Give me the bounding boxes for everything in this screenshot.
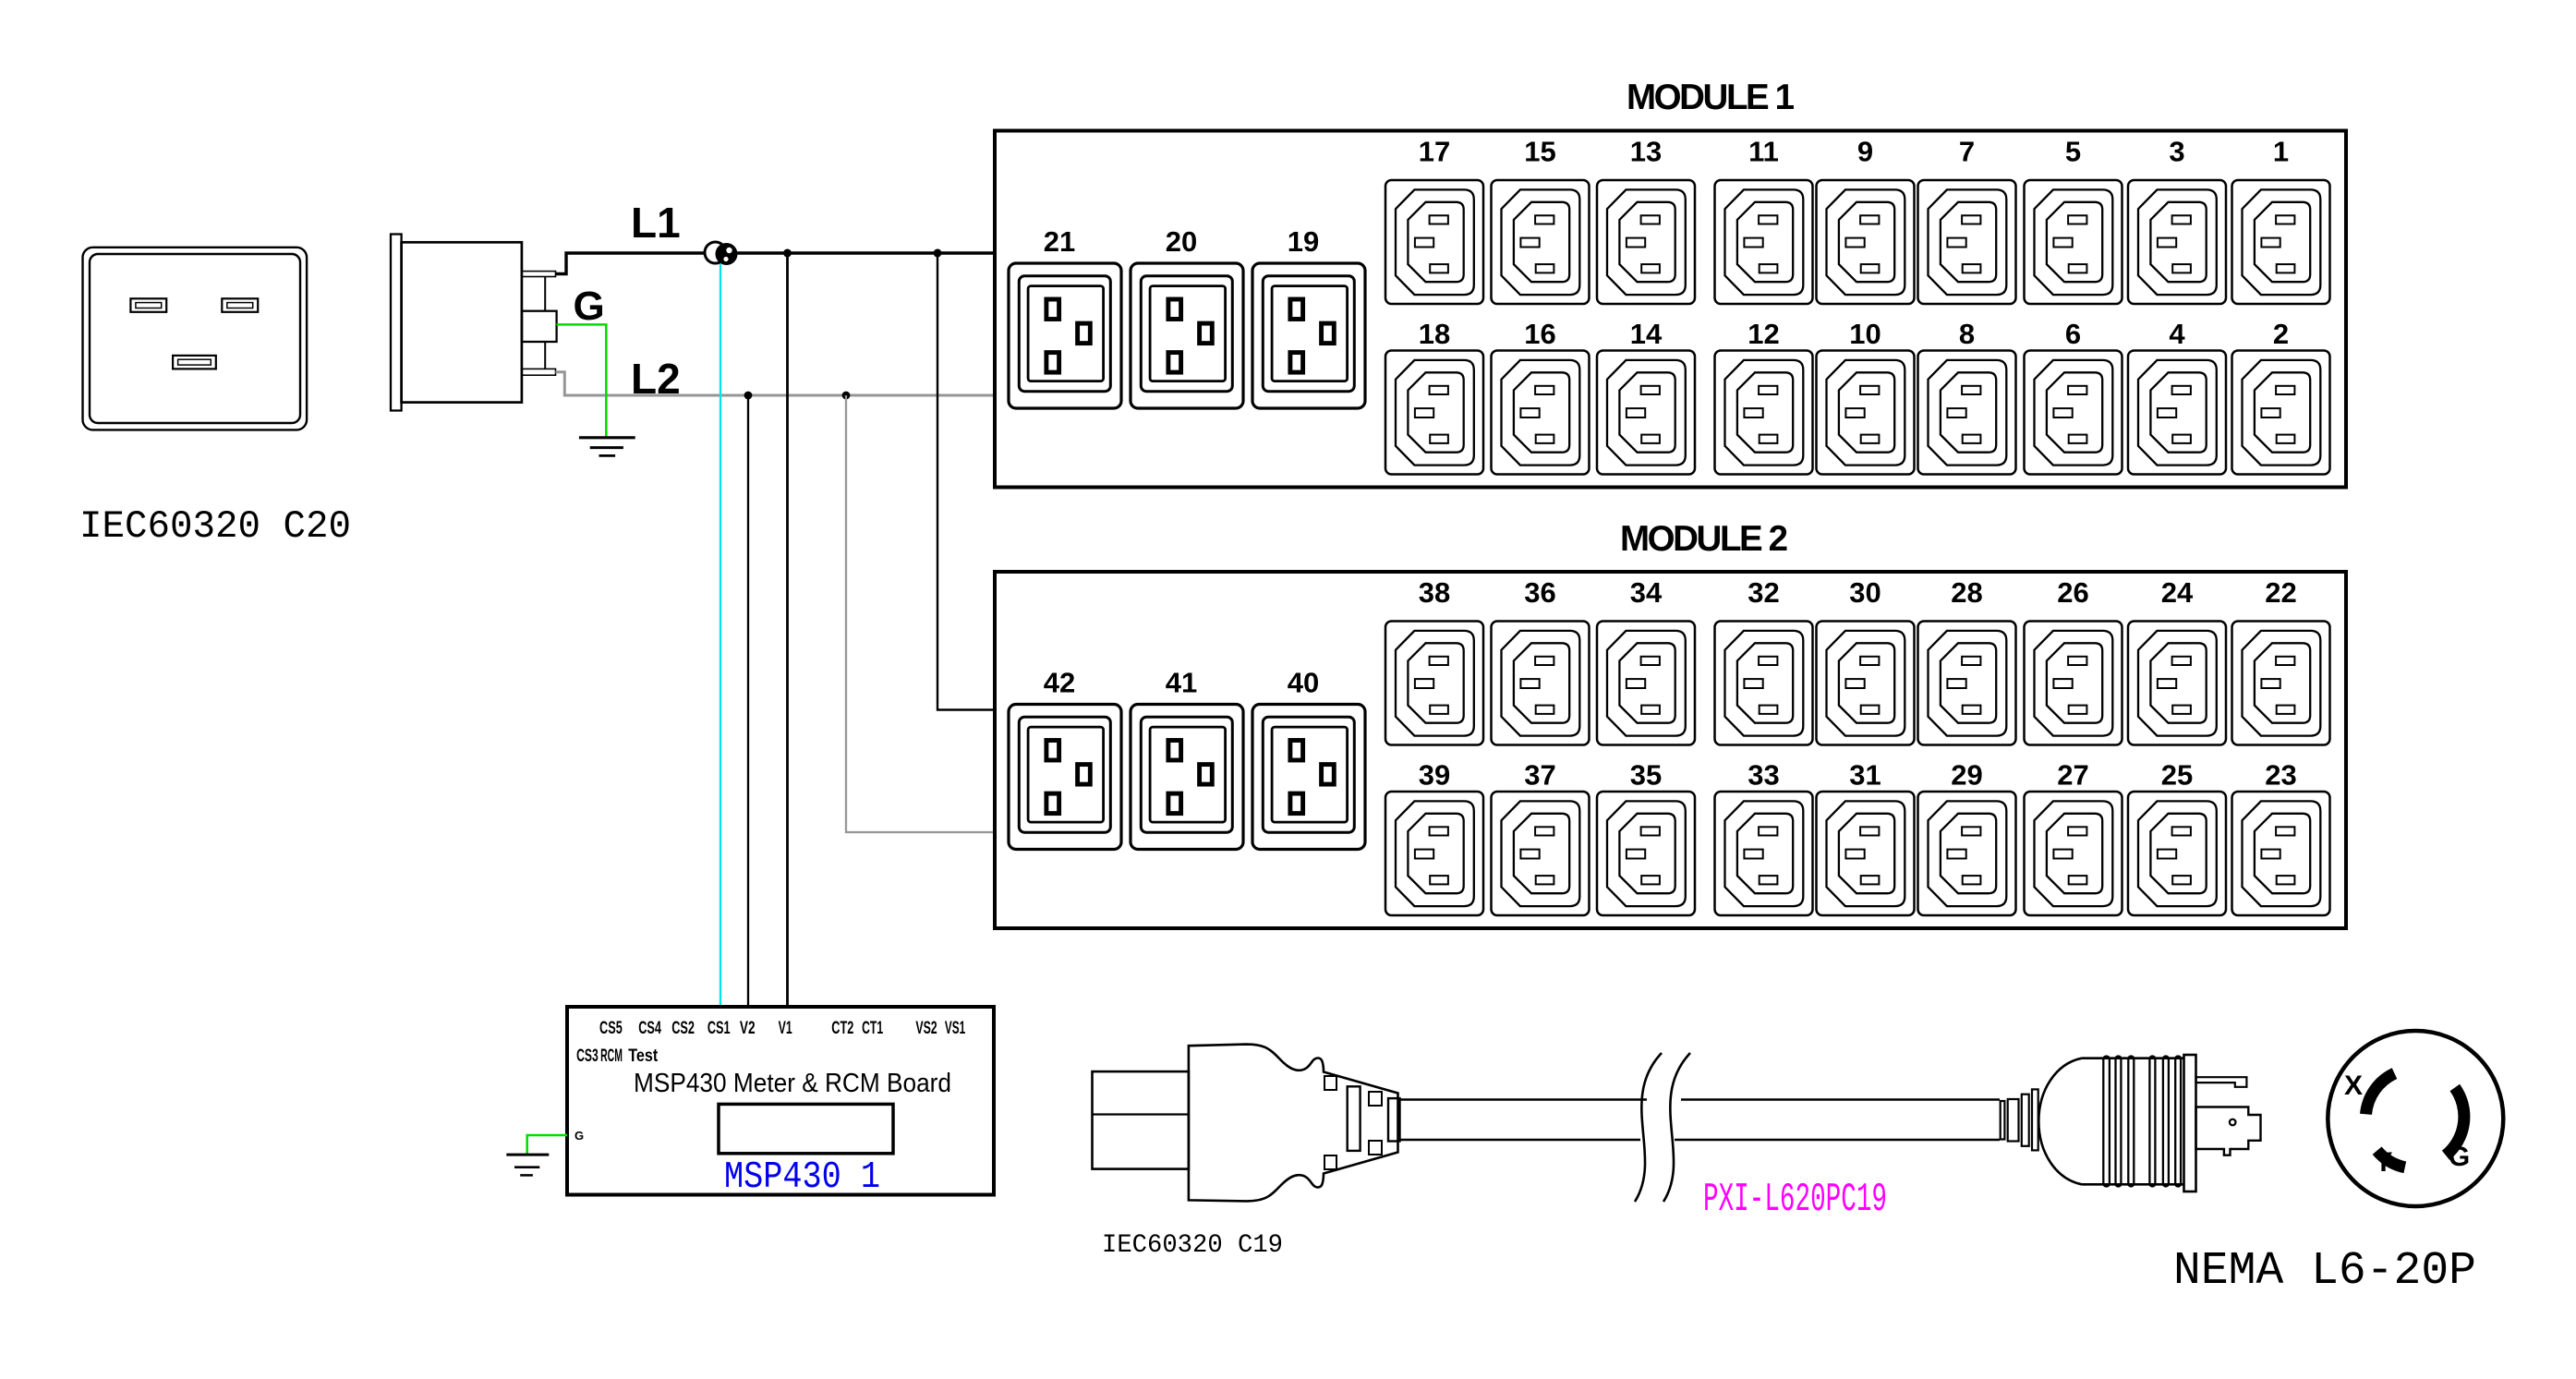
svg-text:6: 6 bbox=[2065, 318, 2081, 350]
svg-text:35: 35 bbox=[1630, 758, 1662, 791]
svg-text:CS2: CS2 bbox=[671, 1019, 695, 1038]
svg-text:V2: V2 bbox=[740, 1018, 756, 1038]
svg-text:3: 3 bbox=[2169, 136, 2184, 168]
svg-text:7: 7 bbox=[1959, 136, 1975, 168]
svg-text:8: 8 bbox=[1959, 318, 1975, 350]
svg-text:17: 17 bbox=[1419, 136, 1450, 168]
svg-text:42: 42 bbox=[1044, 667, 1075, 699]
svg-text:13: 13 bbox=[1630, 136, 1662, 168]
svg-text:Y: Y bbox=[2374, 1147, 2392, 1178]
svg-text:18: 18 bbox=[1419, 318, 1450, 350]
svg-text:5: 5 bbox=[2065, 136, 2081, 168]
svg-text:29: 29 bbox=[1951, 758, 1982, 791]
svg-text:11: 11 bbox=[1748, 136, 1779, 168]
svg-text:37: 37 bbox=[1524, 758, 1555, 791]
svg-text:MODULE 2: MODULE 2 bbox=[1620, 519, 1788, 559]
svg-text:23: 23 bbox=[2265, 758, 2296, 791]
svg-text:38: 38 bbox=[1419, 576, 1450, 609]
svg-text:24: 24 bbox=[2161, 576, 2194, 609]
svg-text:PXI-L620PC19: PXI-L620PC19 bbox=[1703, 1177, 1887, 1223]
svg-text:15: 15 bbox=[1524, 136, 1555, 168]
svg-text:22: 22 bbox=[2265, 576, 2296, 609]
svg-text:41: 41 bbox=[1166, 667, 1197, 699]
svg-text:VS2: VS2 bbox=[915, 1018, 937, 1037]
svg-text:CT1: CT1 bbox=[862, 1020, 883, 1038]
svg-text:CS5: CS5 bbox=[599, 1019, 623, 1038]
svg-text:16: 16 bbox=[1524, 318, 1555, 350]
svg-text:CT2: CT2 bbox=[831, 1019, 853, 1038]
svg-text:12: 12 bbox=[1748, 318, 1779, 350]
svg-text:1: 1 bbox=[2273, 136, 2289, 168]
svg-text:IEC60320 C20: IEC60320 C20 bbox=[79, 504, 351, 549]
svg-text:L1: L1 bbox=[631, 199, 681, 247]
svg-text:20: 20 bbox=[1166, 225, 1197, 258]
svg-text:27: 27 bbox=[2057, 758, 2088, 791]
svg-text:CS3: CS3 bbox=[576, 1047, 599, 1066]
svg-text:25: 25 bbox=[2161, 758, 2193, 791]
svg-text:39: 39 bbox=[1419, 758, 1450, 791]
svg-text:G: G bbox=[574, 284, 605, 329]
svg-text:10: 10 bbox=[1849, 318, 1881, 350]
svg-text:26: 26 bbox=[2057, 576, 2088, 609]
svg-text:CS4: CS4 bbox=[638, 1019, 661, 1038]
svg-text:30: 30 bbox=[1849, 576, 1881, 609]
svg-text:9: 9 bbox=[1857, 136, 1873, 168]
svg-text:Test: Test bbox=[628, 1046, 658, 1066]
svg-text:V1: V1 bbox=[779, 1018, 792, 1037]
svg-text:28: 28 bbox=[1951, 576, 1982, 609]
svg-text:MSP430 1: MSP430 1 bbox=[724, 1156, 880, 1199]
svg-text:36: 36 bbox=[1524, 576, 1555, 609]
svg-text:31: 31 bbox=[1849, 758, 1881, 791]
svg-text:NEMA L6-20P: NEMA L6-20P bbox=[2173, 1245, 2476, 1298]
svg-text:IEC60320 C19: IEC60320 C19 bbox=[1102, 1231, 1283, 1260]
svg-text:MODULE 1: MODULE 1 bbox=[1627, 78, 1795, 117]
svg-text:34: 34 bbox=[1630, 576, 1663, 609]
svg-text:21: 21 bbox=[1044, 225, 1075, 258]
svg-text:2: 2 bbox=[2273, 318, 2289, 350]
svg-text:VS1: VS1 bbox=[945, 1019, 965, 1037]
svg-text:X: X bbox=[2344, 1071, 2363, 1101]
svg-text:4: 4 bbox=[2169, 318, 2185, 350]
svg-text:14: 14 bbox=[1630, 318, 1663, 350]
svg-text:MSP430 Meter & RCM Board: MSP430 Meter & RCM Board bbox=[634, 1069, 951, 1098]
svg-text:40: 40 bbox=[1288, 667, 1319, 699]
svg-text:33: 33 bbox=[1748, 758, 1779, 791]
svg-text:19: 19 bbox=[1288, 225, 1319, 258]
svg-text:G: G bbox=[574, 1129, 584, 1143]
svg-text:G: G bbox=[2449, 1142, 2470, 1172]
svg-text:RCM: RCM bbox=[600, 1046, 623, 1066]
svg-text:32: 32 bbox=[1748, 576, 1779, 609]
svg-text:CS1: CS1 bbox=[707, 1019, 731, 1038]
